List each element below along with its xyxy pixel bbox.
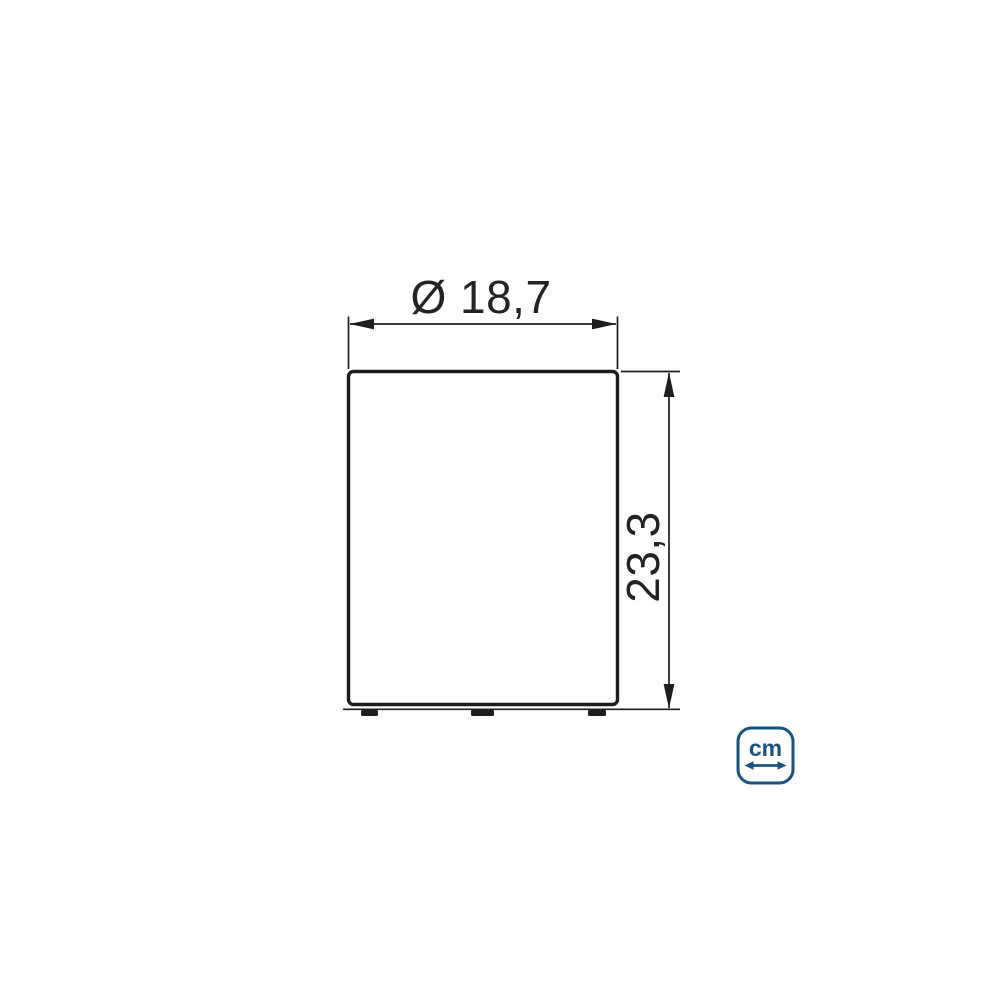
product-foot-right (588, 710, 606, 716)
unit-badge: cm (738, 728, 793, 783)
product-outline (349, 372, 618, 705)
width-arrow-left-icon (350, 319, 375, 330)
height-arrow-top-icon (664, 373, 675, 398)
unit-badge-label: cm (749, 735, 782, 761)
dimension-diagram-page: Ø 18,7 23,3 cm (0, 0, 1000, 1000)
height-dimension-label: 23,3 (617, 511, 669, 603)
product-foot-left (361, 710, 378, 716)
product-foot-center (471, 710, 494, 716)
width-dimension-label: Ø 18,7 (410, 271, 551, 323)
width-arrow-right-icon (592, 319, 617, 330)
height-arrow-bottom-icon (664, 684, 675, 709)
dimension-diagram: Ø 18,7 23,3 cm (0, 0, 1000, 1000)
